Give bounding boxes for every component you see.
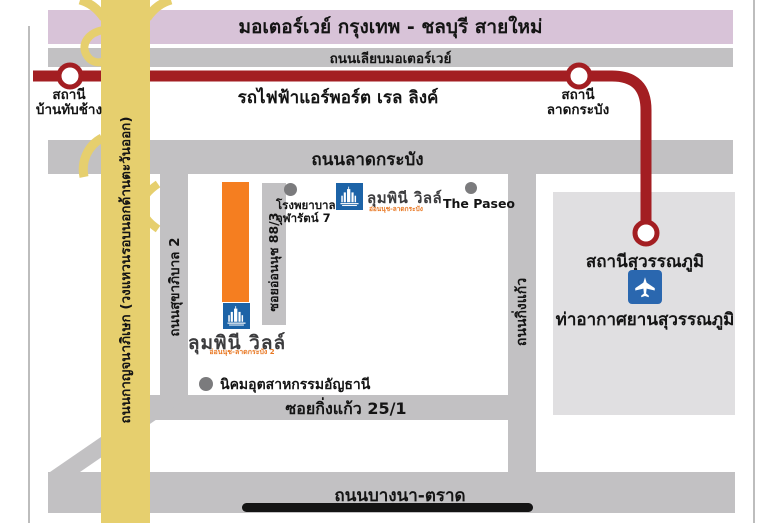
project-site-block xyxy=(222,182,249,302)
soi-king-kaeo-25-1-label: ซอยกิ่งแก้ว 25/1 xyxy=(266,397,426,422)
expressway-bar xyxy=(242,503,533,512)
the-paseo-poi-dot-icon xyxy=(465,182,477,194)
gemopolis-poi-dot-icon xyxy=(199,377,213,391)
airport-label: ท่าอากาศยานสุวรรณภูมิ xyxy=(545,306,745,333)
station-ban-thap-chang-label: สถานี บ้านทับช้าง xyxy=(9,88,129,118)
the-paseo-label: The Paseo xyxy=(443,196,513,211)
station-marker-suvarnabhumi xyxy=(635,222,657,244)
station-marker-lat-krabang xyxy=(568,65,590,87)
station-lat-krabang-label: สถานี ลาดกระบัง xyxy=(518,88,638,118)
lat-krabang-road-label: ถนนลาดกระบัง xyxy=(285,146,450,173)
king-kaeo-label: ถนนกิ่งแก้ว xyxy=(513,242,531,382)
location-map: มอเตอร์เวย์ กรุงเทพ - ชลบุรี สายใหม่ ถนน… xyxy=(0,0,783,523)
project-site-subtitle: อ่อนนุช-ลาดกระบัง 2 xyxy=(177,347,307,358)
hospital-poi-dot-icon xyxy=(284,183,297,196)
station-marker-ban-thap-chang xyxy=(59,65,81,87)
lumpini-towers-icon xyxy=(225,305,248,327)
rail-link-label: รถไฟฟ้าแอร์พอร์ต เรล ลิงค์ xyxy=(188,84,488,111)
nearby-project-subtitle: อ่อนนุช-ลาดกระบัง xyxy=(369,204,423,214)
airplane-icon xyxy=(632,274,658,300)
hospital-label: โรงพยาบาล จุฬารัตน์ 7 xyxy=(276,199,346,225)
gemopolis-label: นิคมอุตสาหกรรมอัญธานี xyxy=(220,374,370,396)
lumpini-logo-icon xyxy=(223,303,250,329)
airplane-sign xyxy=(628,270,662,304)
